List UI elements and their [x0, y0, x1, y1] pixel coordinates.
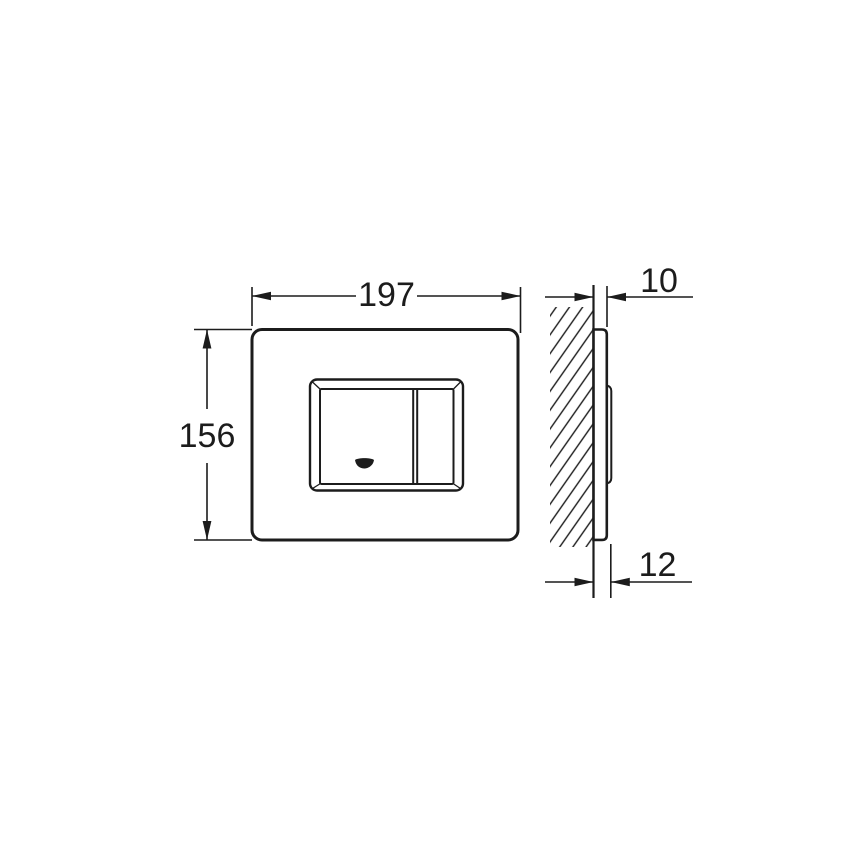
arrowhead-right-icon [502, 292, 521, 301]
arrowhead-up-icon [203, 330, 212, 349]
arrowhead-left-icon [607, 293, 626, 302]
arrowhead-right-icon [575, 578, 594, 587]
front-view: 197 156 [179, 276, 521, 540]
plate-depth-label: 10 [640, 262, 678, 300]
wall-hatching [550, 307, 593, 547]
arrowhead-right-icon [575, 293, 594, 302]
height-dimension-label: 156 [179, 417, 236, 455]
side-view: 10 12 [545, 262, 693, 598]
plate-outline [252, 330, 518, 541]
total-depth-dimension: 12 [545, 544, 692, 598]
width-dimension-label: 197 [358, 276, 415, 314]
width-dimension: 197 [252, 276, 521, 333]
arrowhead-down-icon [203, 521, 212, 540]
arrowhead-left-icon [611, 578, 630, 587]
height-dimension: 156 [179, 330, 252, 541]
technical-drawing-canvas: 197 156 [0, 0, 868, 868]
total-depth-label: 12 [639, 546, 677, 584]
flush-plate-front [252, 330, 518, 541]
plate-profile [594, 330, 607, 540]
arrowhead-left-icon [252, 292, 271, 301]
flush-plate-drawing: 197 156 [0, 0, 868, 868]
